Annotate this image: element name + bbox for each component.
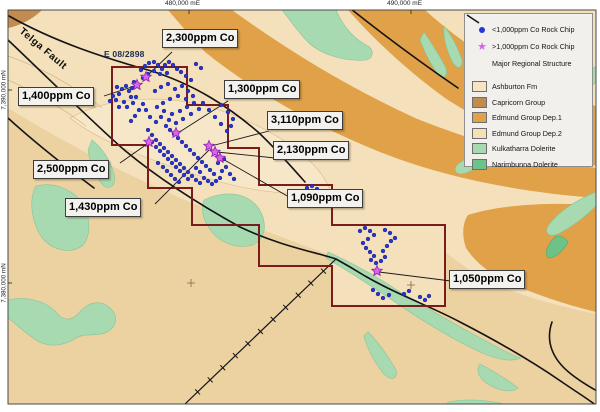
legend-item-high-grade: ★ >1,000ppm Co Rock Chip — [472, 38, 588, 55]
callout-1300ppm: 1,300ppm Co — [224, 80, 300, 99]
legend-label: Edmund Group Dep.1 — [492, 113, 562, 122]
callout-2500ppm: 2,500ppm Co — [33, 160, 109, 179]
axis-label-northing-7380000: 7,380,000 mN — [1, 263, 8, 303]
magenta-star-icon: ★ — [477, 42, 487, 52]
callout-1430ppm: 1,430ppm Co — [65, 198, 141, 217]
callout-1090ppm: 1,090ppm Co — [287, 189, 363, 208]
legend-item-low-grade: <1,000ppm Co Rock Chip — [472, 21, 588, 38]
unit-swatch — [472, 159, 487, 170]
legend-label: Major Regional Structure — [492, 59, 572, 68]
callout-2300ppm: 2,300ppm Co — [162, 29, 238, 48]
axis-label-easting-490000: 490,000 mE — [387, 0, 422, 7]
unit-swatch — [472, 143, 487, 154]
unit-swatch — [472, 97, 487, 108]
tenement-id-label: E 08/2898 — [104, 49, 145, 59]
legend-label: Capricorn Group — [492, 98, 545, 107]
callout-3110ppm: 3,110ppm Co — [267, 111, 343, 130]
legend-label: Edmund Group Dep.2 — [492, 129, 562, 138]
unit-swatch — [472, 112, 487, 123]
axis-label-easting-480000: 480,000 mE — [165, 0, 200, 7]
unit-swatch — [472, 81, 487, 92]
legend-label: Kulkatharra Dolerite — [492, 144, 556, 153]
geological-map-figure: 480,000 mE 490,000 mE 7,390,000 mN 7,380… — [0, 0, 600, 412]
callout-2130ppm: 2,130ppm Co — [273, 141, 349, 160]
legend-label: Narimbunna Dolerite — [492, 160, 558, 169]
legend-unit-kulkatharra: Kulkatharra Dolerite — [472, 141, 588, 157]
callout-1400ppm: 1,400ppm Co — [18, 87, 94, 106]
blue-dot-icon — [479, 27, 485, 33]
unit-swatch — [472, 128, 487, 139]
legend-unit-ashburton: Ashburton Fm — [472, 79, 588, 95]
legend-unit-narimbunna: Narimbunna Dolerite — [472, 157, 588, 173]
map-legend: <1,000ppm Co Rock Chip ★ >1,000ppm Co Ro… — [464, 13, 593, 167]
callout-1050ppm: 1,050ppm Co — [449, 270, 525, 289]
legend-unit-capricorn: Capricorn Group — [472, 95, 588, 111]
legend-unit-edmund2: Edmund Group Dep.2 — [472, 126, 588, 142]
legend-label: Ashburton Fm — [492, 82, 537, 91]
legend-label: <1,000ppm Co Rock Chip — [492, 25, 575, 34]
legend-label: >1,000ppm Co Rock Chip — [492, 42, 575, 51]
axis-label-northing-7390000: 7,390,000 mN — [1, 70, 8, 110]
legend-unit-edmund1: Edmund Group Dep.1 — [472, 110, 588, 126]
legend-item-structure: Major Regional Structure — [472, 55, 588, 72]
